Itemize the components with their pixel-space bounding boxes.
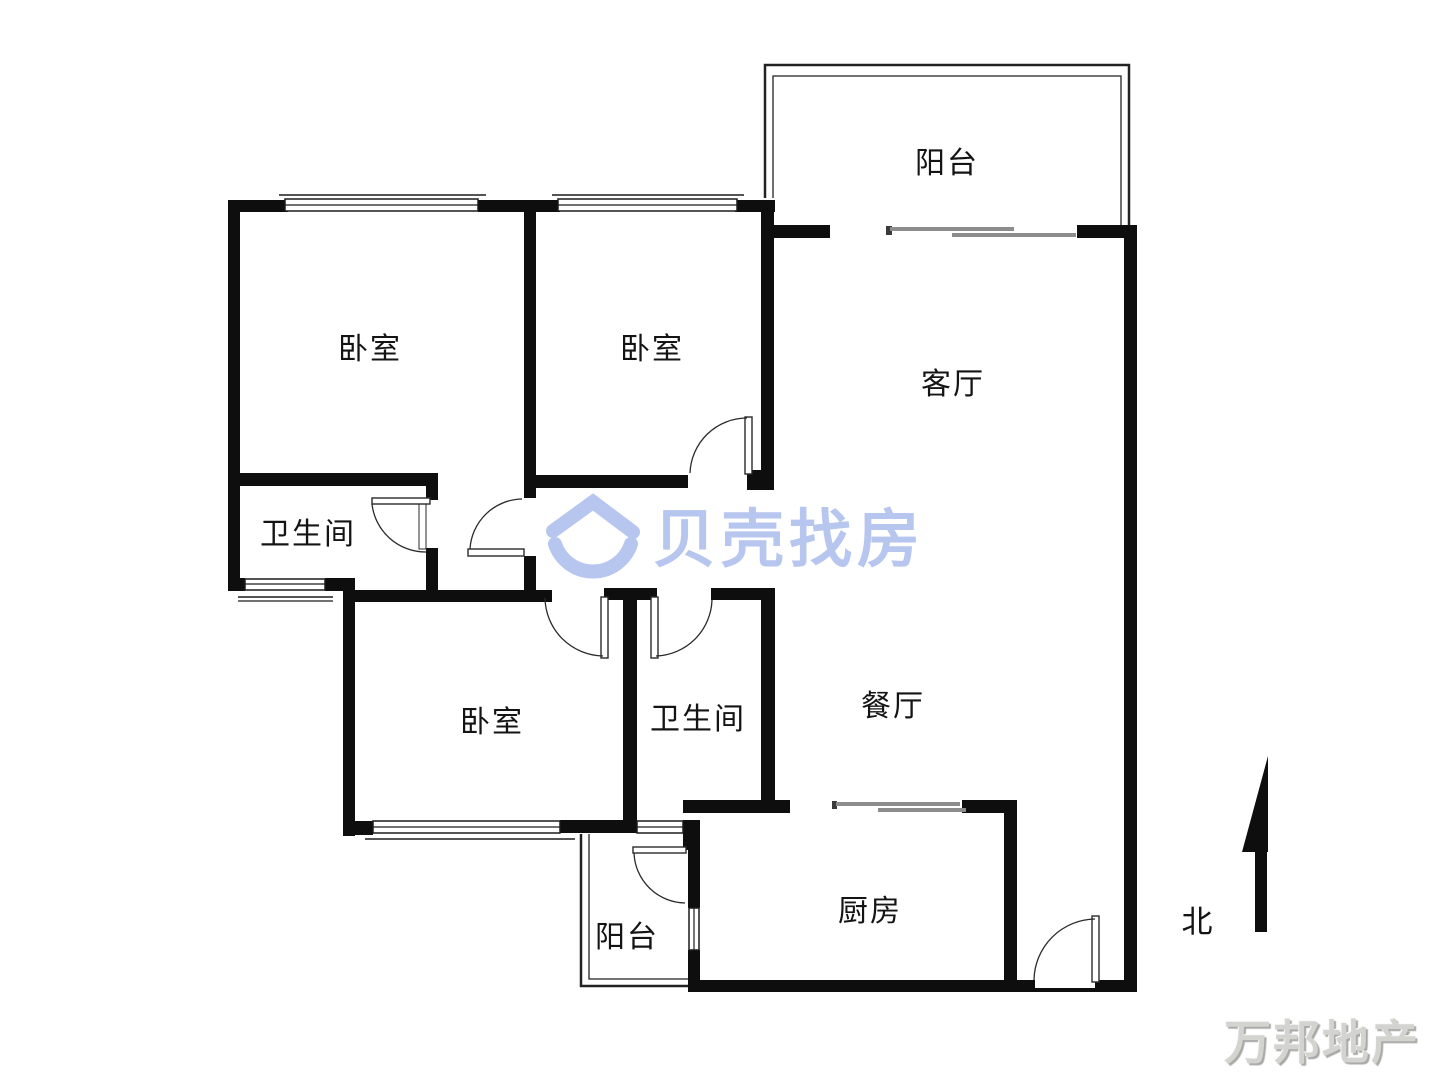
kitchen-balcony-window bbox=[689, 908, 699, 950]
beike-logo-watermark: 贝壳找房 bbox=[543, 489, 925, 580]
beike-logo-text: 贝壳找房 bbox=[653, 489, 925, 580]
bedroom3-door bbox=[545, 597, 608, 658]
room-label-bedroom-1: 卧室 bbox=[338, 324, 402, 368]
room-label-dining-room: 餐厅 bbox=[861, 681, 925, 725]
bathroom1-door bbox=[372, 498, 430, 552]
hall-door bbox=[468, 499, 524, 556]
room-label-bedroom-3: 卧室 bbox=[460, 697, 524, 741]
walls bbox=[228, 200, 1137, 992]
bathroom2-door bbox=[651, 597, 712, 658]
bathroom1-window bbox=[238, 579, 333, 601]
kitchen-sliding-door bbox=[832, 801, 966, 812]
room-label-balcony-bottom: 阳台 bbox=[595, 912, 659, 956]
floorplan-page: 阳台 卧室 卧室 客厅 卫生间 卧室 卫生间 餐厅 厨房 阳台 北 贝壳找房 万… bbox=[0, 0, 1440, 1080]
agency-watermark: 万邦地产 bbox=[1224, 1004, 1434, 1073]
living-balcony-sliding-door bbox=[886, 226, 1076, 237]
entry-door bbox=[1034, 916, 1099, 982]
room-label-bathroom-1: 卫生间 bbox=[260, 509, 356, 553]
bedroom3-window bbox=[365, 821, 575, 839]
room-label-living-room: 客厅 bbox=[921, 359, 985, 403]
bedroom1-window bbox=[279, 195, 486, 211]
balcony-passage-window bbox=[637, 821, 683, 833]
north-label: 北 bbox=[1182, 897, 1213, 942]
room-label-bathroom-2: 卫生间 bbox=[650, 694, 746, 738]
bedroom2-window bbox=[552, 195, 744, 211]
room-label-bedroom-2: 卧室 bbox=[620, 324, 684, 368]
north-arrow-icon bbox=[1242, 756, 1268, 932]
room-label-kitchen: 厨房 bbox=[838, 886, 902, 930]
room-label-balcony-top: 阳台 bbox=[915, 138, 979, 182]
balcony-door bbox=[633, 847, 686, 903]
bedroom2-door bbox=[690, 417, 752, 474]
